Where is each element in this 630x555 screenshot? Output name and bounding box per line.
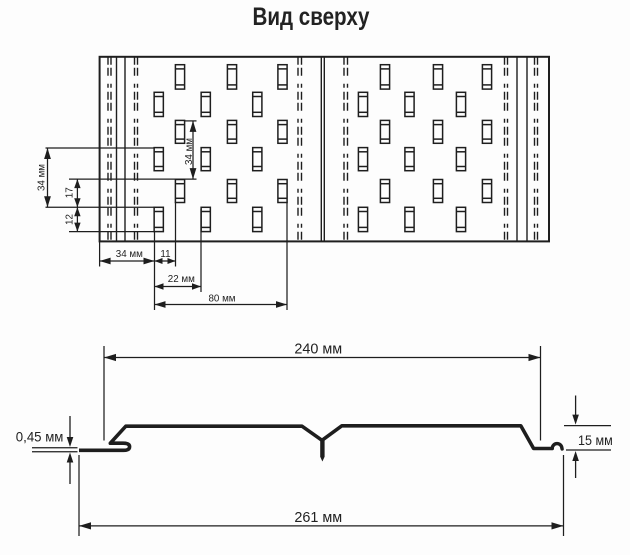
svg-text:Вид сверху: Вид сверху	[253, 3, 370, 31]
svg-text:22 мм: 22 мм	[168, 274, 195, 285]
svg-text:34 мм: 34 мм	[184, 138, 195, 165]
svg-text:261 мм: 261 мм	[294, 510, 342, 526]
svg-text:11: 11	[160, 249, 170, 260]
svg-text:15 мм: 15 мм	[578, 433, 613, 448]
svg-text:12: 12	[64, 214, 75, 225]
svg-text:0,45 мм: 0,45 мм	[16, 430, 64, 445]
svg-text:80 мм: 80 мм	[208, 294, 235, 305]
svg-text:17: 17	[64, 187, 75, 198]
svg-text:240 мм: 240 мм	[294, 342, 342, 358]
svg-text:34 мм: 34 мм	[37, 164, 48, 191]
svg-text:34 мм: 34 мм	[116, 249, 143, 260]
